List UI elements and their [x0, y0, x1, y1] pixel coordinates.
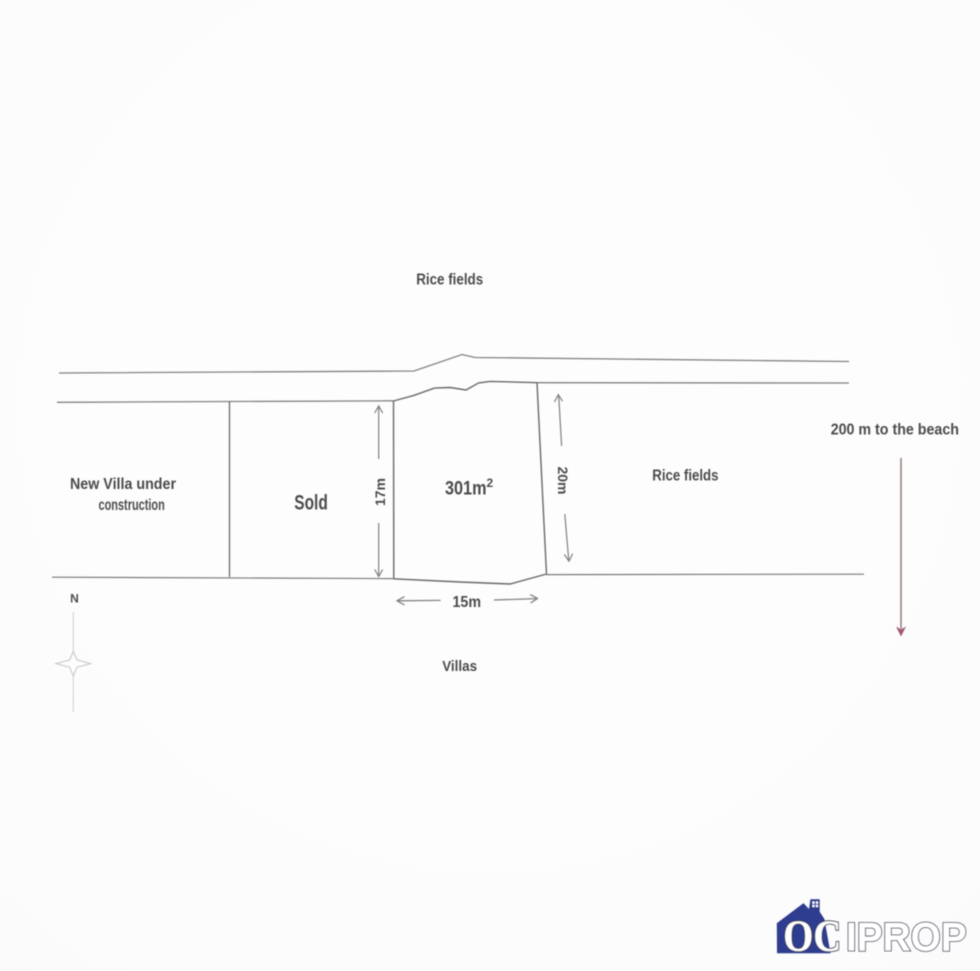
svg-text:IPROP: IPROP: [846, 916, 967, 960]
svg-text:Rice fields: Rice fields: [416, 272, 483, 289]
svg-text:New Villa under: New Villa under: [70, 476, 176, 493]
svg-text:N: N: [70, 592, 79, 606]
svg-text:2: 2: [487, 476, 494, 490]
svg-text:17m: 17m: [372, 478, 388, 506]
svg-text:Rice fields: Rice fields: [652, 468, 718, 485]
svg-text:construction: construction: [99, 497, 165, 514]
svg-text:OC: OC: [783, 912, 841, 961]
svg-text:301m: 301m: [445, 479, 487, 500]
svg-text:Villas: Villas: [442, 658, 477, 675]
svg-text:Sold: Sold: [294, 492, 328, 515]
svg-text:20m: 20m: [555, 466, 571, 494]
svg-text:15m: 15m: [453, 594, 482, 611]
svg-text:200 m to the beach: 200 m to the beach: [831, 421, 959, 438]
